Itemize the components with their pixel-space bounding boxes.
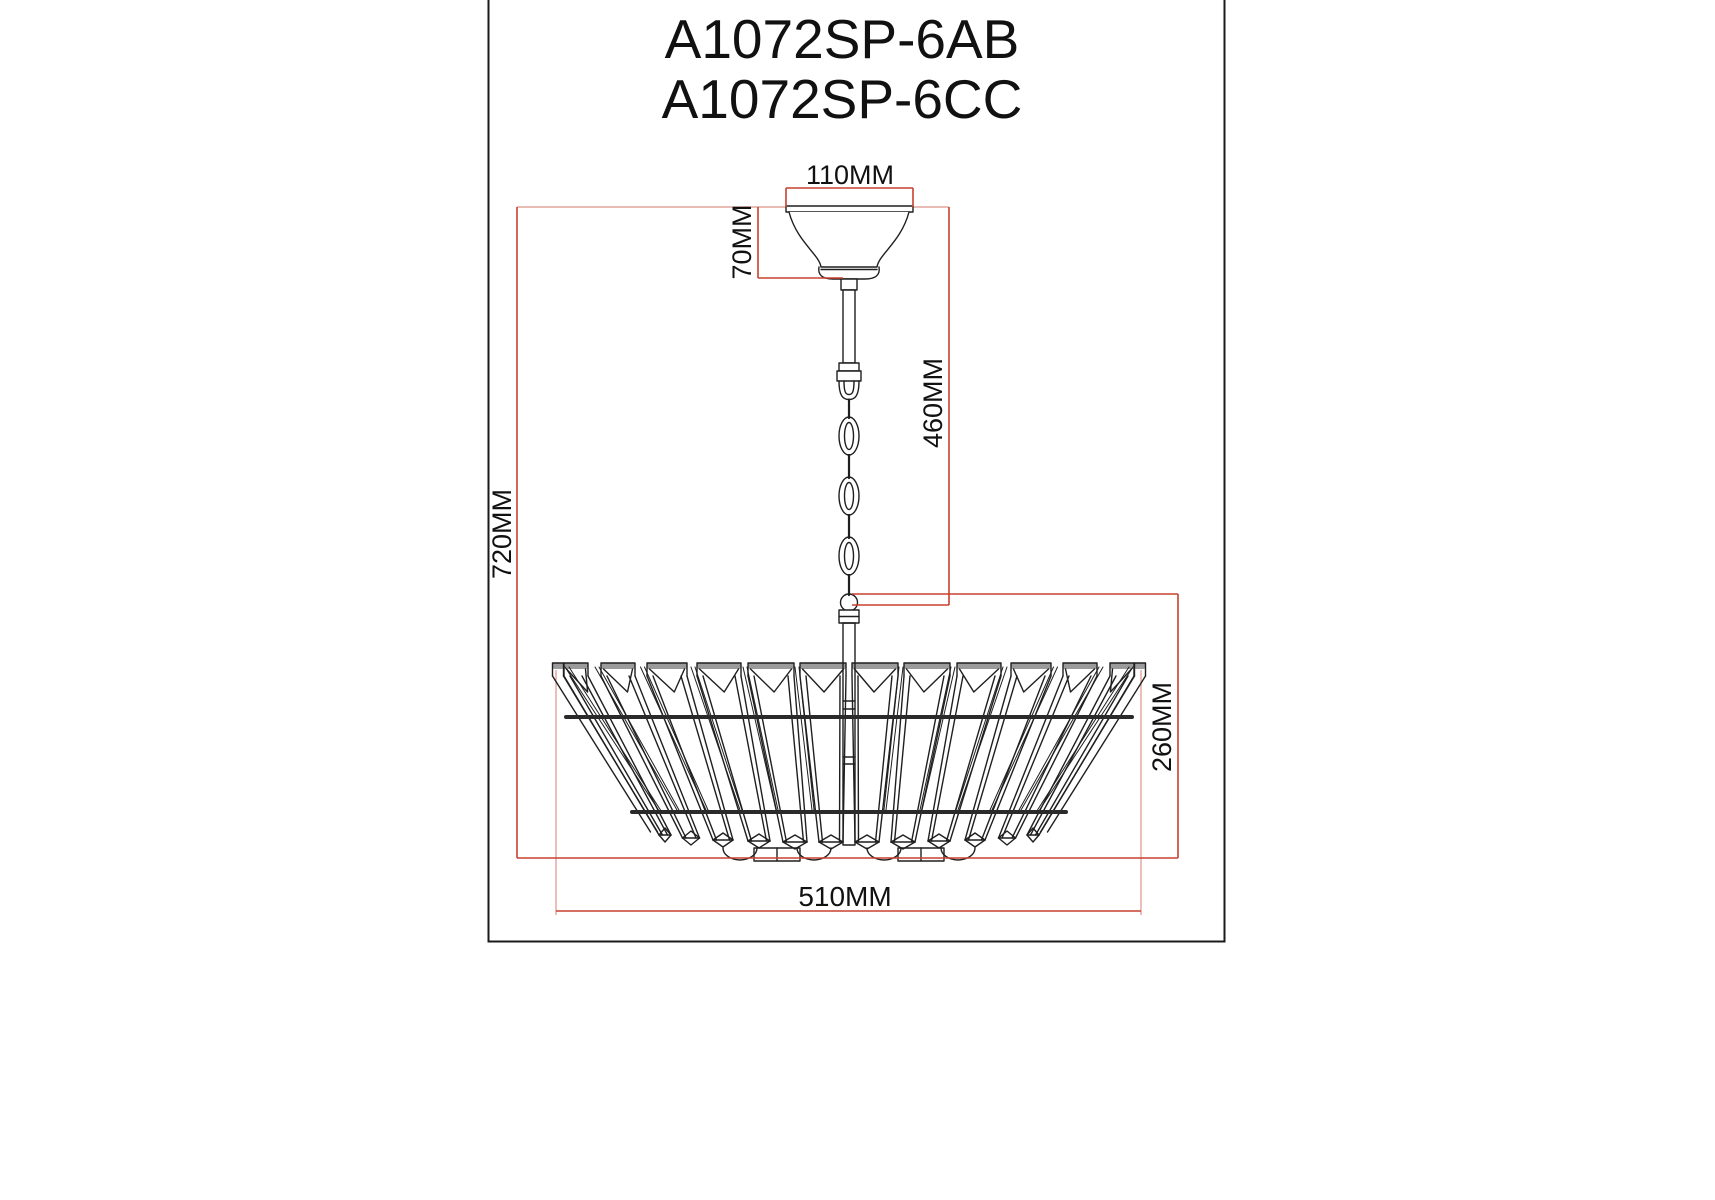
upper-shackle-outer xyxy=(839,381,859,400)
canopy-bell xyxy=(789,212,909,267)
drawing-border xyxy=(489,0,1225,942)
fixture-drawing xyxy=(553,206,1146,861)
lower-hook-loop xyxy=(841,594,858,611)
bottom-ornaments xyxy=(723,848,975,861)
upper-rod-collar xyxy=(839,363,859,371)
chain-link-2-inner xyxy=(845,483,854,510)
upper-connector-block xyxy=(837,371,861,381)
dim-label-shade-height: 260MM xyxy=(1147,682,1177,772)
dim-label-shade-width: 510MM xyxy=(798,881,891,912)
canopy-neck xyxy=(841,279,857,290)
drawing-canvas: A1072SP-6AB A1072SP-6CC 110MM 70MM 460MM… xyxy=(0,0,1715,1200)
chain-link-3-inner xyxy=(845,543,854,570)
dim-label-total-height: 720MM xyxy=(487,489,517,579)
crystal-prisms xyxy=(553,663,1146,849)
product-code-line1: A1072SP-6AB xyxy=(665,8,1020,70)
product-code-line2: A1072SP-6CC xyxy=(662,68,1023,130)
reference-lines xyxy=(517,207,1141,915)
dim-label-canopy-width: 110MM xyxy=(806,160,894,190)
chain-link-1-inner xyxy=(845,423,854,450)
chain-assembly xyxy=(837,290,861,623)
dim-label-canopy-height: 70MM xyxy=(727,204,757,279)
upper-rod xyxy=(843,290,855,363)
upper-shackle-inner xyxy=(844,381,854,395)
dim-label-chain-length: 460MM xyxy=(918,358,948,448)
technical-drawing-page: A1072SP-6AB A1072SP-6CC 110MM 70MM 460MM… xyxy=(0,0,1715,1200)
canopy-top-plate xyxy=(786,206,913,212)
